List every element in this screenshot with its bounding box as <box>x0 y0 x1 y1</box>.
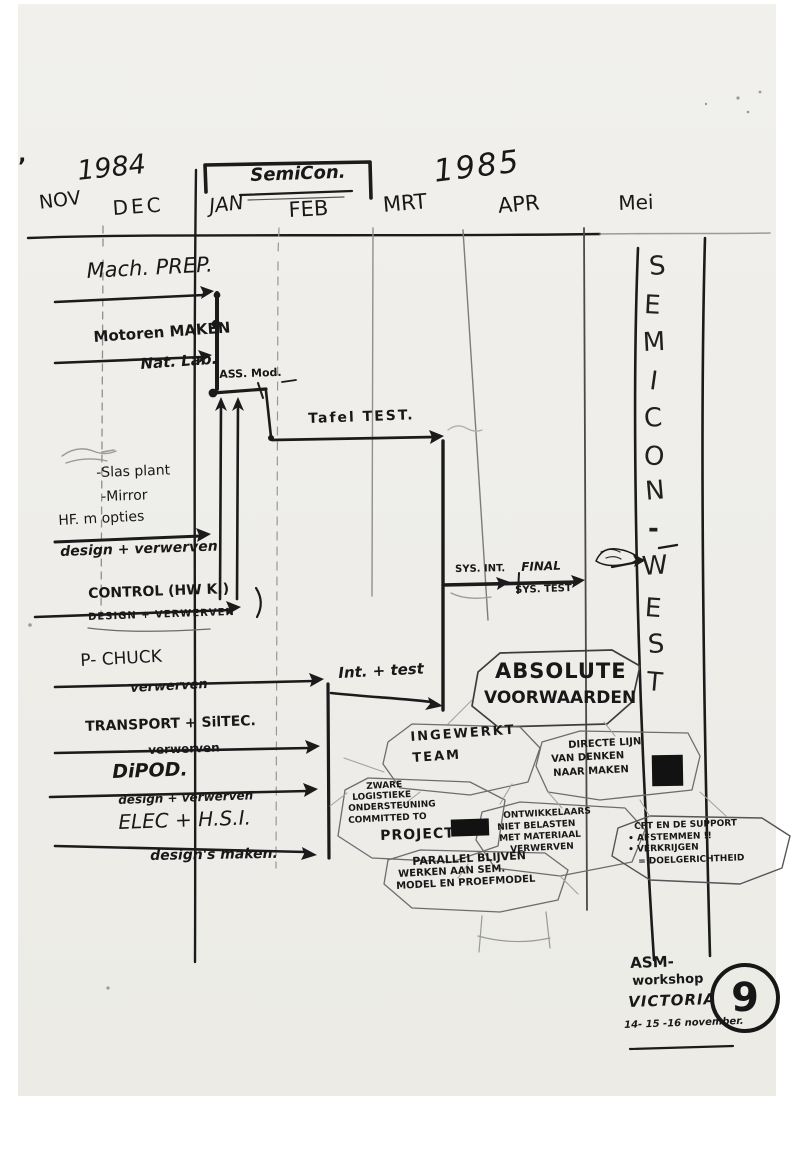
workshop-number-badge: 9 <box>710 963 780 1033</box>
phase-sys-int: SYS. INT. <box>455 564 505 575</box>
timeline-axis-faded <box>600 233 770 234</box>
timeline-axis <box>28 234 600 238</box>
month-jan: JAN <box>208 192 245 217</box>
side-banner-hyphen: - <box>648 514 659 544</box>
ink-layer <box>28 91 790 1049</box>
int-test-arrow <box>331 693 431 702</box>
tafel-bar <box>272 437 434 440</box>
collector-line <box>328 684 329 858</box>
guide-jan-feb <box>276 228 279 868</box>
project-banner: SemiCon. <box>250 164 346 186</box>
side-banner-letter: E <box>644 593 662 624</box>
phase-final: FINAL <box>521 560 561 574</box>
side-banner-letter: O <box>643 441 666 472</box>
task-ass-mod: ASS. Mod. <box>219 367 282 381</box>
footer-victoria: VICTORIA <box>628 992 716 1011</box>
month-mrt: MRT <box>382 190 428 216</box>
ass-mod-bar <box>213 389 266 393</box>
footer-workshop: workshop <box>632 973 704 989</box>
scanned-planning-sheet: ’ 1984 NOV DEC SemiCon. 1985 JAN FEB MRT… <box>0 0 800 1151</box>
up-line-2 <box>237 402 238 599</box>
side-banner-letter: S <box>647 629 665 660</box>
note-ingewerkt-2: TEAM <box>412 749 462 766</box>
elbow <box>266 391 271 437</box>
workshop-number: 9 <box>731 975 759 1021</box>
year-divider-line <box>195 170 196 962</box>
note-zware-5: PROJECT <box>380 826 455 843</box>
month-feb: FEB <box>288 197 329 221</box>
opties-line2: -Mirror <box>101 488 148 504</box>
side-banner-letter: N <box>644 475 666 507</box>
side-banner-letter: T <box>645 667 663 698</box>
task-transport-sub: verwerven <box>148 742 220 757</box>
month-mei: Mei <box>618 192 654 214</box>
semicon-west-column-right <box>703 238 710 956</box>
semicon-underline <box>240 191 352 195</box>
task-elec-sub: design's maken. <box>150 847 278 864</box>
redaction-box-square <box>652 755 684 787</box>
mach-prep-bar <box>55 295 204 302</box>
footer-asm: ASM- <box>630 954 674 971</box>
side-banner-letter: M <box>642 327 666 358</box>
note-absolute-1: ABSOLUTE <box>495 660 627 682</box>
month-dec: DEC <box>112 194 164 219</box>
side-banner-letter: S <box>648 251 667 282</box>
note-absolute-2: VOORWAARDEN <box>484 690 636 708</box>
up-line-1 <box>220 402 221 599</box>
guide-nov-dec <box>101 226 103 620</box>
opties-line1: -Slas plant <box>96 463 170 480</box>
phase-sys-test: SYS. TEST <box>515 584 572 596</box>
side-banner-letter: E <box>643 290 661 321</box>
redaction-box-small <box>451 818 490 836</box>
guide-mrt-apr <box>463 230 488 620</box>
month-apr: APR <box>497 191 540 217</box>
stray-mark: ’ <box>18 156 26 179</box>
side-banner-letter: W <box>641 550 669 582</box>
task-dipod: DiPOD. <box>112 760 188 783</box>
task-elec: ELEC + H.S.I. <box>118 807 251 833</box>
footer-underline <box>630 1046 733 1049</box>
ass-mod-dash <box>282 380 296 382</box>
side-banner-letter: C <box>643 403 663 434</box>
